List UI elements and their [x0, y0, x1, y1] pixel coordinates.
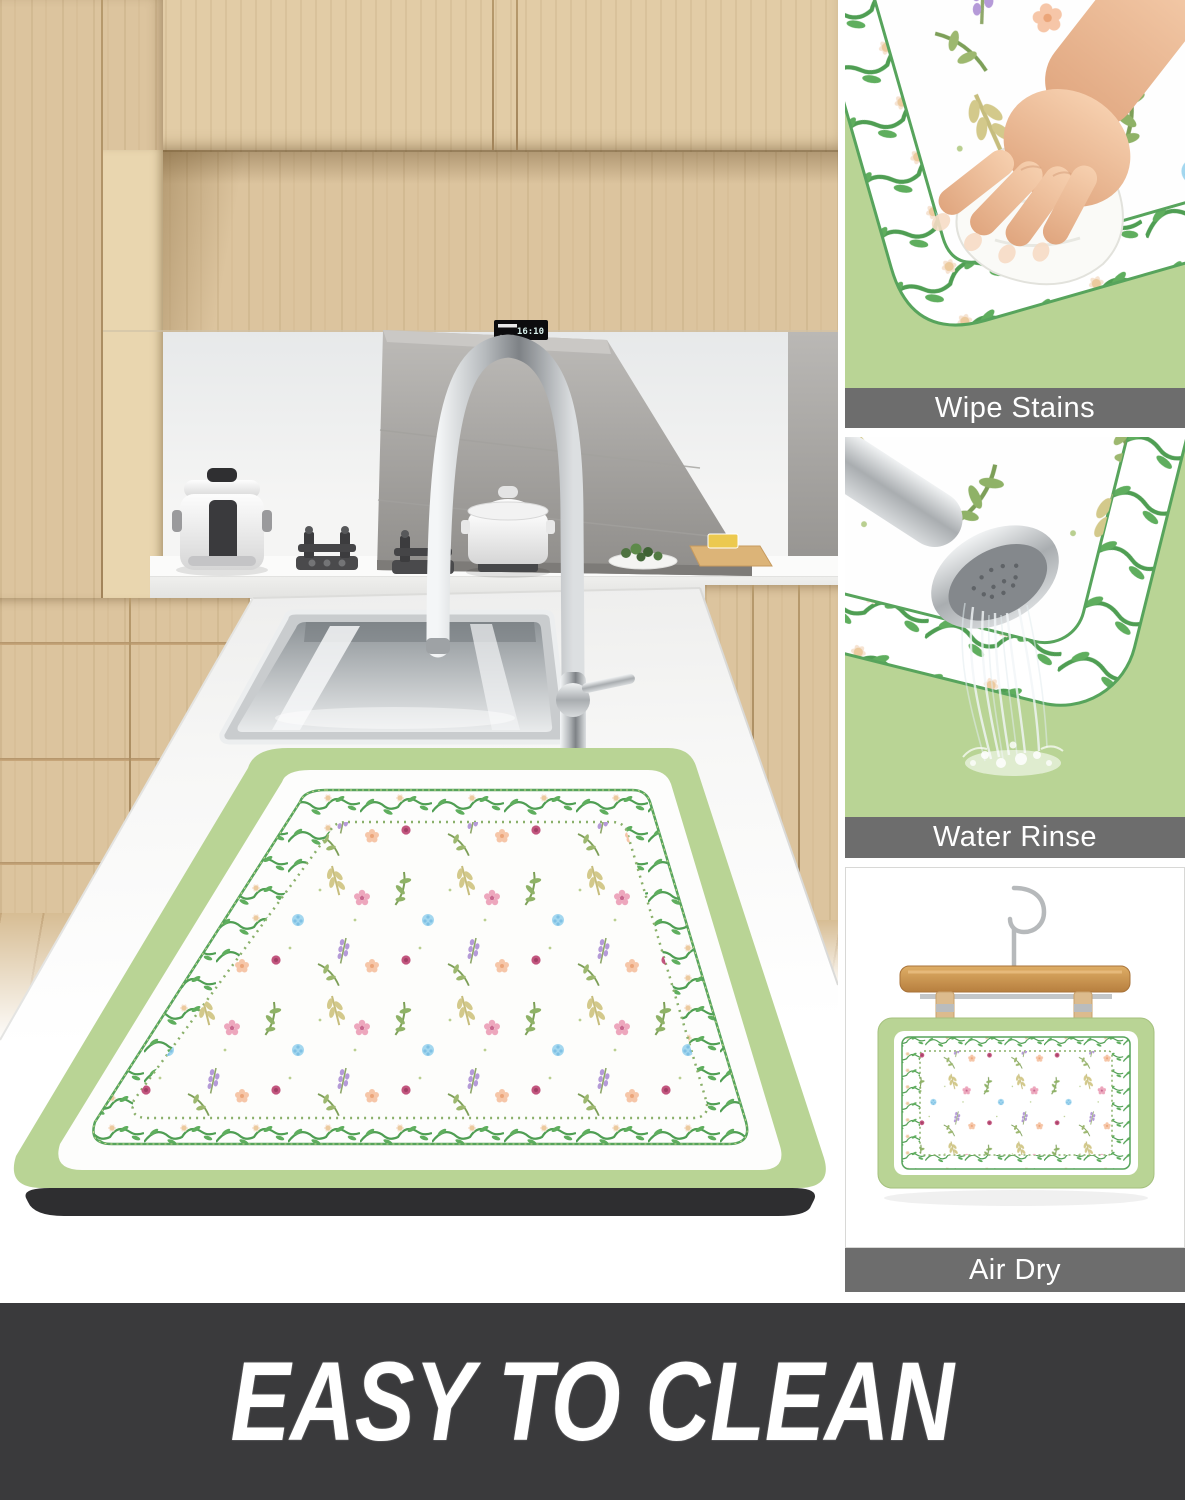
wipe-stains-photo — [845, 0, 1185, 388]
kitchen-photo: 16:10 — [0, 0, 838, 1303]
water-rinse-photo — [845, 437, 1185, 817]
kitchen-overlay: 16:10 — [0, 0, 838, 1303]
product-collage: 16:10 — [0, 0, 1185, 1500]
label-bar: Air Dry — [845, 1248, 1185, 1292]
panel-label: Air Dry — [969, 1254, 1061, 1287]
drying-mat — [14, 748, 826, 1216]
label-bar: Wipe Stains — [845, 388, 1185, 428]
panel-label: Wipe Stains — [935, 392, 1095, 425]
label-bar: Water Rinse — [845, 817, 1185, 858]
panel-label: Water Rinse — [933, 821, 1097, 854]
svg-text:16:10: 16:10 — [517, 327, 544, 337]
hanger-illustration — [900, 888, 1130, 1024]
kitchen-sink — [222, 612, 566, 742]
bottom-banner: EASY TO CLEAN — [0, 1303, 1185, 1500]
panel-water-rinse — [845, 437, 1185, 817]
panel-wipe-stains — [845, 0, 1185, 388]
banner-text: EASY TO CLEAN — [231, 1337, 955, 1466]
feature-panels: Wipe Stains — [845, 0, 1185, 1303]
air-dry-photo — [846, 868, 1184, 1247]
gas-burner — [296, 526, 358, 570]
pressure-cooker — [172, 468, 272, 576]
panel-air-dry — [845, 867, 1185, 1248]
hanging-mat — [878, 1018, 1154, 1206]
